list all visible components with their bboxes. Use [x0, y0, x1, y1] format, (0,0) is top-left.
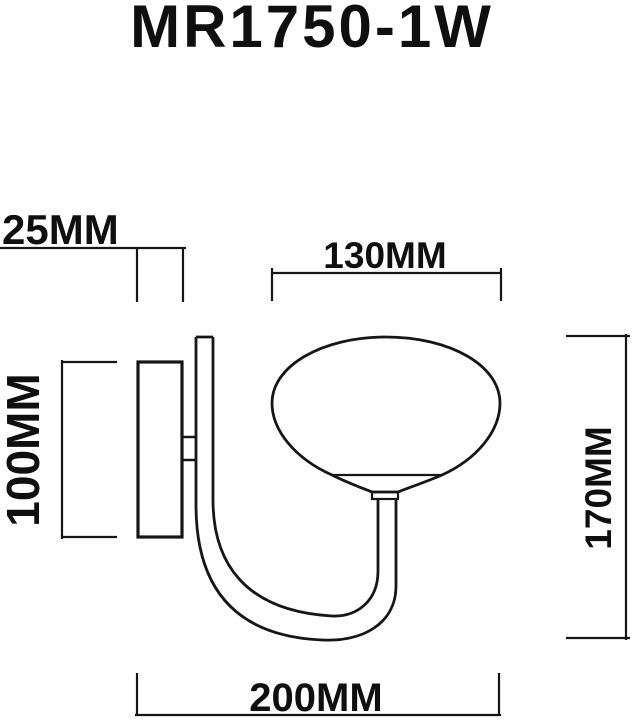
- dim-100-ticks: [62, 362, 117, 537]
- dimension-mount-depth: 25MM: [0, 206, 186, 302]
- arm-tube-inner-edge: [213, 337, 378, 616]
- socket-cap: [372, 492, 398, 499]
- dim-200-label: 200MM: [249, 676, 382, 720]
- mount-connector: [182, 437, 196, 460]
- dim-25-label: 25MM: [2, 206, 119, 253]
- dimension-total-projection: 200MM: [135, 673, 501, 720]
- dim-170-label: 170MM: [578, 426, 619, 549]
- dim-130-label: 130MM: [323, 235, 446, 276]
- product-title: MR1750-1W: [130, 0, 494, 60]
- technical-drawing-sheet: MR1750-1W 25MM: [0, 0, 632, 720]
- dimension-backplate-height: 100MM: [0, 360, 117, 539]
- dimension-shade-width: 130MM: [272, 235, 501, 301]
- dim-25-extension-lines: [137, 248, 183, 302]
- wall-lamp-diagram: MR1750-1W 25MM: [0, 0, 632, 720]
- dimension-fixture-height: 170MM: [566, 334, 630, 640]
- glass-shade: [272, 337, 500, 492]
- lamp-drawing: [138, 337, 500, 640]
- wall-backplate: [138, 362, 182, 537]
- dim-100-label: 100MM: [0, 373, 49, 526]
